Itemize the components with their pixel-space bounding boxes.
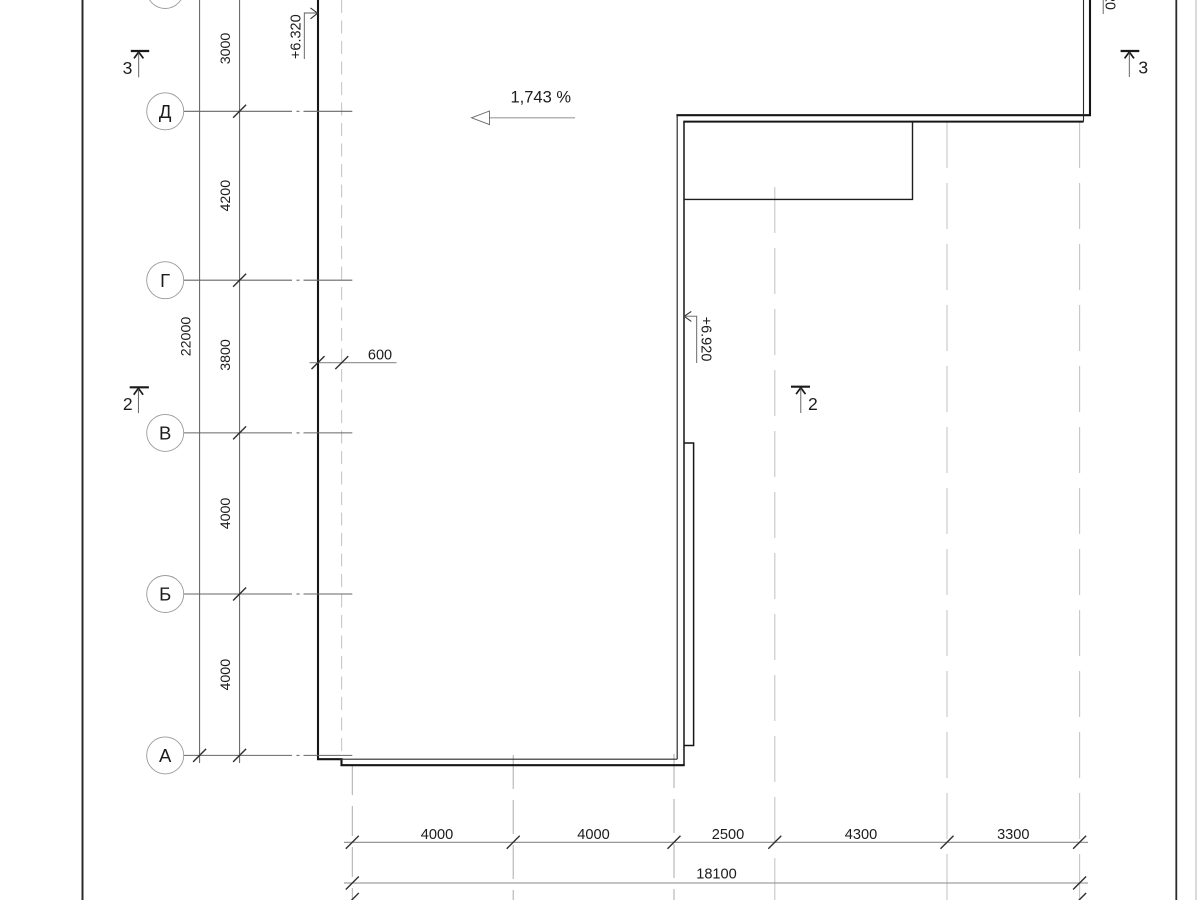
svg-text:2500: 2500 — [712, 827, 744, 843]
svg-text:4000: 4000 — [577, 827, 609, 843]
svg-text:4200: 4200 — [218, 180, 234, 212]
svg-text:+6.320: +6.320 — [289, 14, 305, 59]
svg-text:Д: Д — [159, 101, 172, 122]
svg-text:2: 2 — [808, 394, 818, 414]
svg-text:3000: 3000 — [218, 33, 234, 65]
svg-text:22000: 22000 — [179, 317, 195, 357]
svg-text:3: 3 — [1138, 58, 1148, 78]
svg-text:3800: 3800 — [218, 339, 234, 371]
svg-text:1,743 %: 1,743 % — [511, 88, 572, 106]
svg-text:В: В — [159, 423, 171, 444]
svg-text:А: А — [159, 745, 172, 766]
svg-text:4000: 4000 — [421, 827, 453, 843]
svg-text:4300: 4300 — [845, 827, 877, 843]
svg-text:3300: 3300 — [997, 827, 1029, 843]
svg-text:2: 2 — [123, 394, 133, 414]
svg-text:+6.320: +6.320 — [1102, 0, 1118, 10]
svg-text:3: 3 — [123, 58, 133, 78]
svg-text:4000: 4000 — [218, 498, 234, 530]
svg-text:600: 600 — [368, 347, 392, 363]
svg-text:4000: 4000 — [218, 659, 234, 691]
svg-text:18100: 18100 — [696, 867, 737, 883]
svg-text:+6.920: +6.920 — [698, 317, 714, 362]
svg-text:Г: Г — [160, 270, 170, 291]
svg-text:Б: Б — [159, 584, 171, 605]
